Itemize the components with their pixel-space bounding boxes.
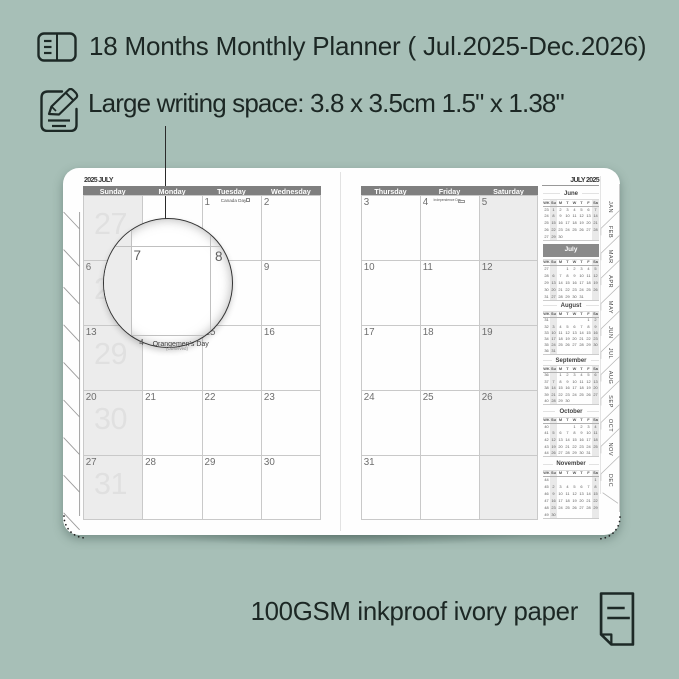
svg-text:MAR: MAR [607,250,613,264]
svg-text:FEB: FEB [607,226,613,238]
svg-text:SEP: SEP [607,395,613,408]
svg-text:AUG: AUG [607,371,613,385]
svg-text:OCT: OCT [607,419,613,432]
svg-text:JAN: JAN [607,201,613,213]
svg-text:MAY: MAY [607,301,613,314]
svg-text:DEC: DEC [607,474,613,487]
svg-text:JUN: JUN [607,326,613,338]
svg-text:APR: APR [607,275,613,288]
svg-text:NOV: NOV [607,442,613,456]
svg-text:JUL: JUL [607,348,613,359]
